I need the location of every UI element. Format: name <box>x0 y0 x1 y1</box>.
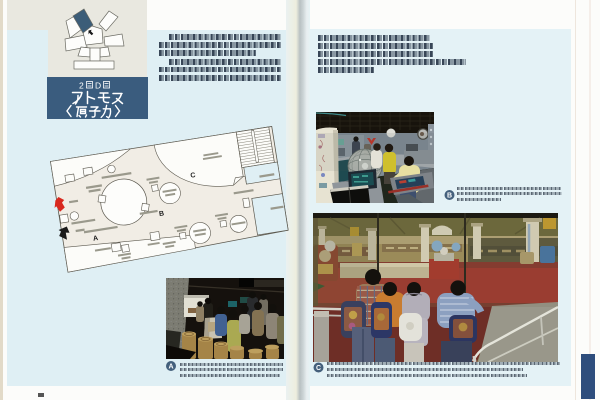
svg-text:C: C <box>316 365 321 372</box>
svg-text:D: D <box>95 81 101 91</box>
svg-text:A: A <box>93 235 99 243</box>
svg-text:2: 2 <box>79 81 84 91</box>
svg-text:A: A <box>168 364 173 371</box>
svg-text:C: C <box>190 172 196 180</box>
svg-text:B: B <box>447 193 452 200</box>
svg-text:B: B <box>159 210 165 218</box>
